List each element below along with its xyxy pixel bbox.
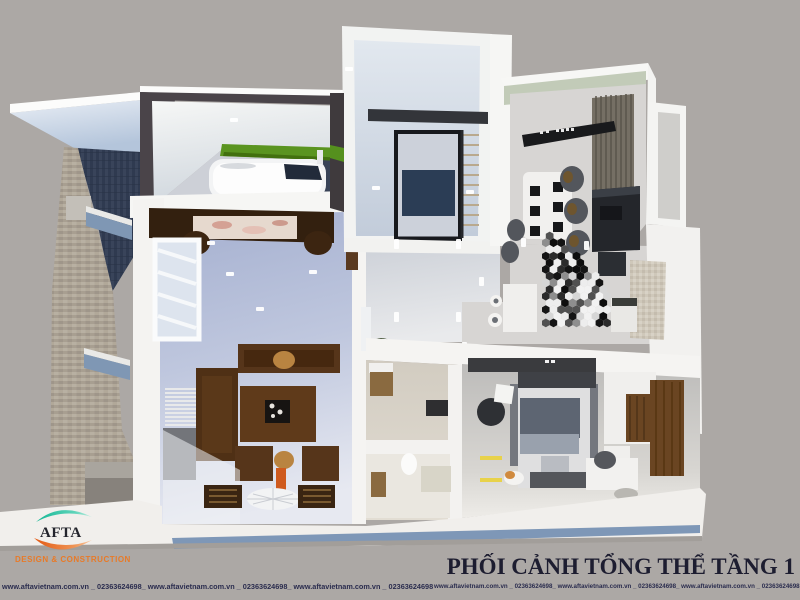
svg-text:PHỐI CẢNH TỔNG THỂ TẦNG 1: PHỐI CẢNH TỔNG THỂ TẦNG 1: [447, 553, 795, 579]
svg-text:AFTA: AFTA: [40, 525, 82, 541]
svg-text:www.aftavietnam.com.vn _ 02363: www.aftavietnam.com.vn _ 02363624698_ ww…: [1, 582, 433, 591]
svg-text:www.aftavietnam.com.vn _ 02363: www.aftavietnam.com.vn _ 02363624698_ ww…: [433, 583, 800, 590]
svg-text:DESIGN & CONSTRUCTION: DESIGN & CONSTRUCTION: [15, 555, 131, 564]
